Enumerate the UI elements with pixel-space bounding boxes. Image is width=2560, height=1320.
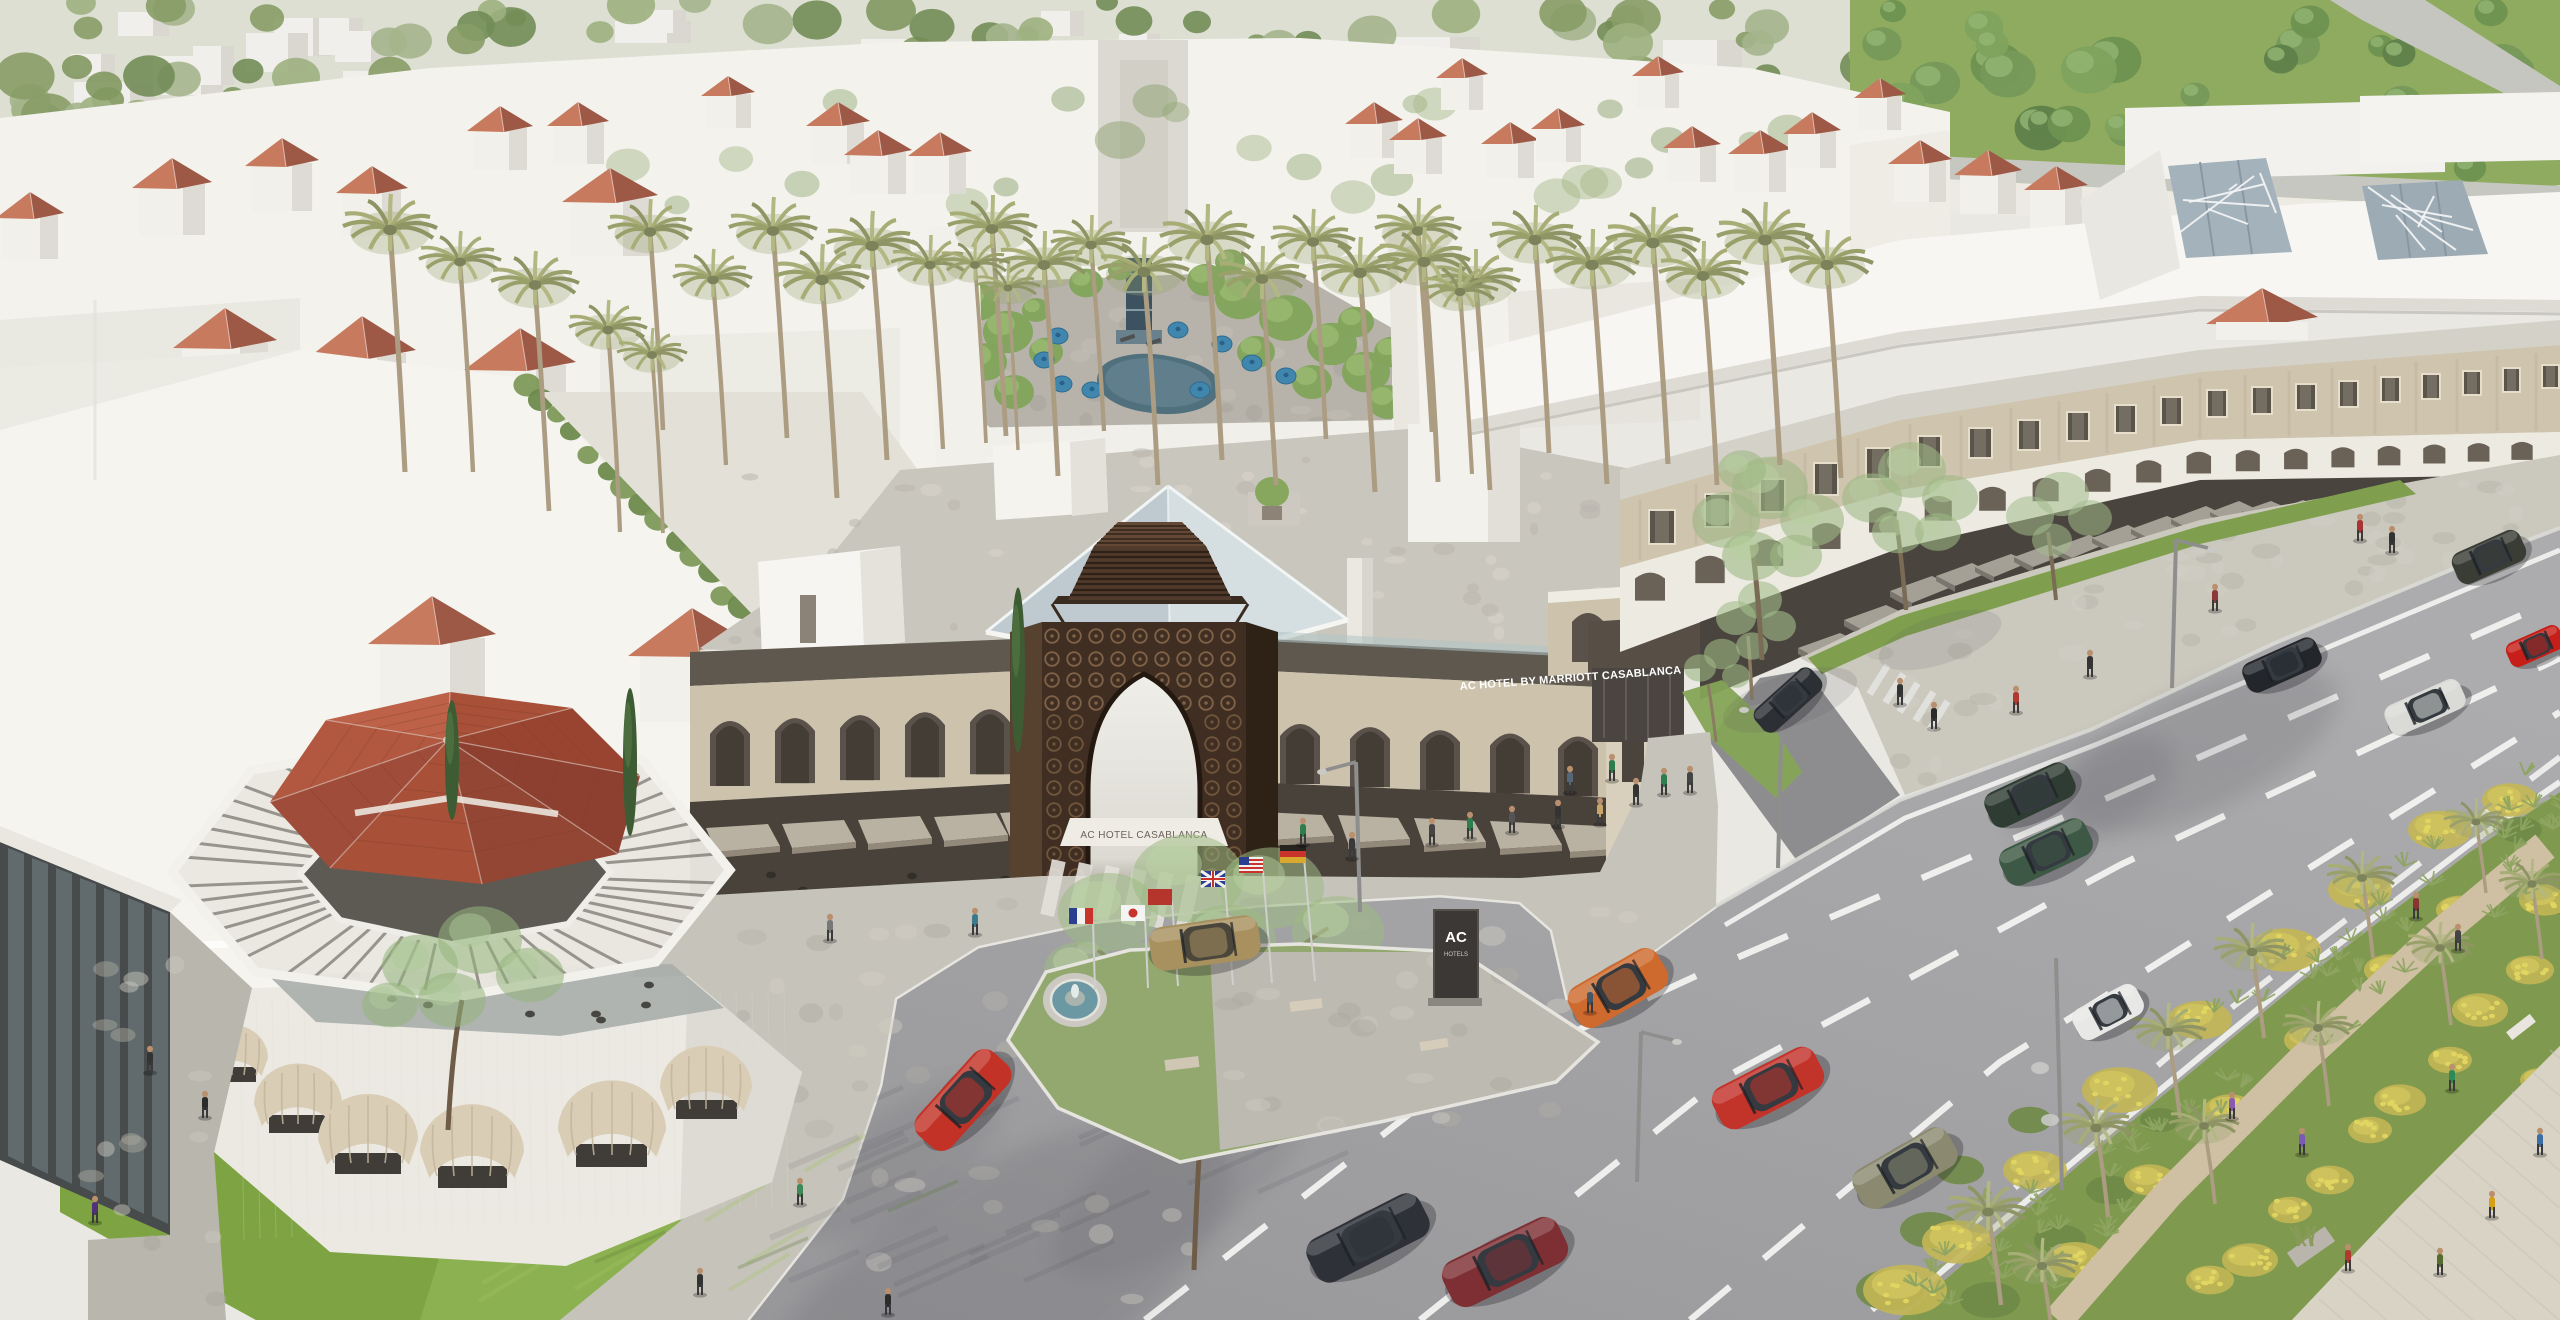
svg-text:AC: AC (1445, 929, 1467, 946)
svg-text:HOTELS: HOTELS (1444, 952, 1468, 958)
